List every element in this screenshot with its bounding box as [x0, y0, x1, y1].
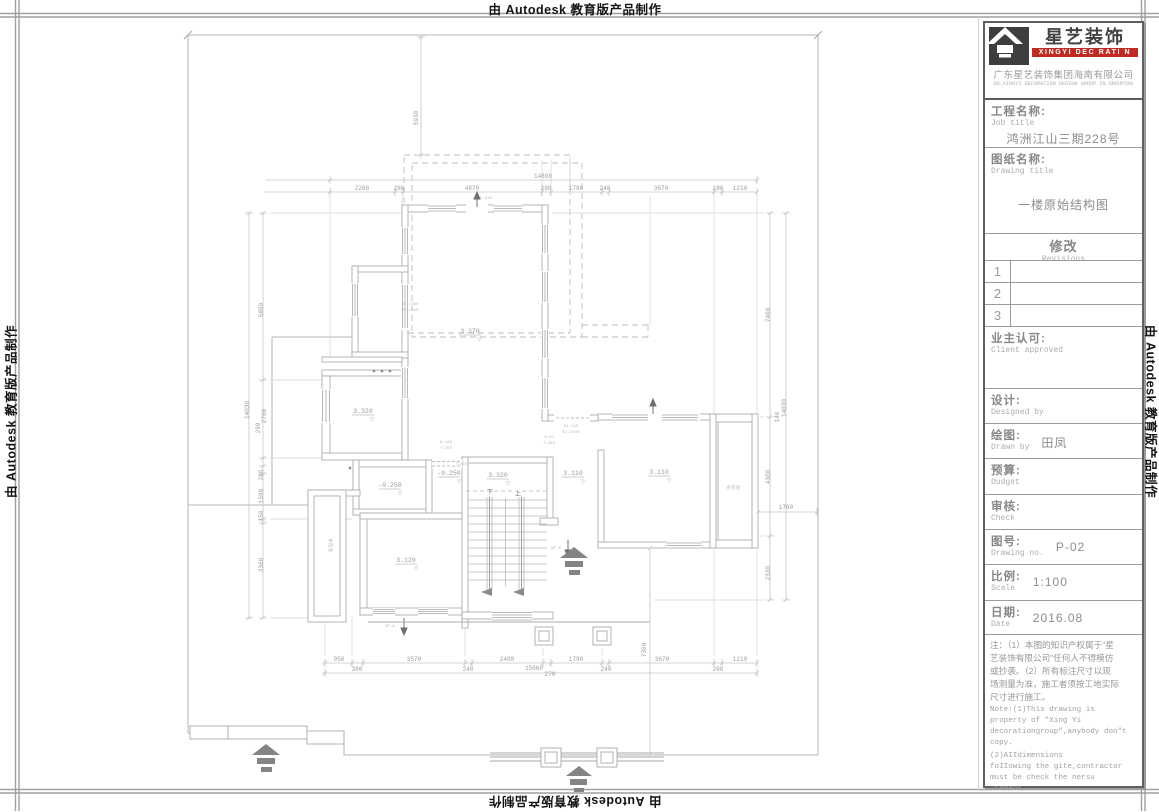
svg-text:270: 270: [545, 671, 556, 678]
autodesk-watermark-right: 由 Autodesk 教育版产品制作: [1143, 262, 1159, 562]
drawing-sheet: { "edge_marks": { "top": "由 Autodesk 教育版…: [0, 0, 1159, 811]
entrance-marker-stair-side-icon: [560, 547, 588, 575]
svg-text:140: 140: [774, 411, 781, 422]
revision-number: 3: [985, 305, 1011, 326]
revision-row-3: 3: [985, 305, 1142, 327]
check-label-cn: 审核:: [991, 498, 1136, 514]
drawing-title-value: 一楼原始结构图: [991, 196, 1136, 213]
revisions-label-cn: 修改: [991, 236, 1136, 255]
stair-down-arrowhead-icon: [481, 588, 492, 596]
drawing-title-section: 图纸名称: Drawing title 一楼原始结构图: [985, 148, 1142, 234]
drawing-no-label-cn: 图号:: [991, 533, 1044, 549]
job-title-label-cn: 工程名称:: [991, 103, 1136, 119]
svg-text:▽: ▽: [457, 479, 461, 485]
date-value: 2016.08: [1033, 611, 1083, 631]
svg-text:3670: 3670: [654, 185, 669, 192]
notes-section: 注：（1）本图的知识产权属于"星 艺装饰有限公司"任何人不得模仿 或抄袭。（2）…: [985, 635, 1142, 799]
stair-up-arrowhead-icon: [513, 588, 524, 596]
job-title-label-en: Job title: [991, 119, 1136, 128]
svg-text:950: 950: [334, 656, 345, 663]
entrance-marker-left-gate-icon: [252, 744, 280, 772]
autodesk-watermark-top: 由 Autodesk 教育版产品制作: [425, 0, 725, 18]
svg-text:WT-A: WT-A: [551, 547, 561, 551]
upper-floor-dashed-outline: [404, 155, 648, 420]
check-label-en: Check: [991, 514, 1136, 523]
svg-text:240: 240: [601, 666, 612, 673]
svg-text:2480: 2480: [500, 656, 515, 663]
revisions-label-en: Revisions: [991, 255, 1136, 261]
svg-text:WT-A: WT-A: [385, 625, 395, 629]
svg-text:K1:240: K1:240: [564, 425, 579, 429]
drawn-by-label-en: Drawn by: [991, 443, 1029, 452]
staircase: [466, 491, 549, 596]
svg-text:▽: ▽: [667, 478, 671, 484]
svg-text:280: 280: [394, 185, 405, 192]
job-title-value: 鸿洲江山三期228号: [991, 130, 1136, 147]
svg-text:1790: 1790: [569, 656, 584, 663]
svg-text:水花池: 水花池: [726, 484, 740, 491]
drawing-title-label-cn: 图纸名称:: [991, 151, 1136, 167]
designed-by-section: 设计: Designed by: [985, 389, 1142, 424]
svg-text:150: 150: [258, 510, 265, 521]
revision-row-1: 1: [985, 261, 1142, 283]
svg-text:T:260: T:260: [543, 442, 556, 446]
svg-text:280: 280: [258, 469, 265, 480]
dimension-chains: [245, 35, 819, 757]
svg-text:15060: 15060: [525, 665, 543, 672]
svg-text:K2:2640: K2:2640: [563, 431, 580, 435]
logo-section: 星艺装饰 XINGYI DEC RATI N 广东星艺装饰集团海南有限公司 GD…: [985, 23, 1142, 100]
drawn-by-value: 田凤: [1041, 434, 1067, 455]
client-approved-label-cn: 业主认可:: [991, 330, 1136, 346]
drawing-no-label-en: Drawing no.: [991, 549, 1044, 558]
check-section: 审核: Check: [985, 495, 1142, 530]
client-approved-label-en: Client approved: [991, 346, 1136, 355]
svg-text:-0.250: -0.250: [378, 482, 402, 489]
svg-text:14890: 14890: [534, 173, 552, 180]
revision-number: 2: [985, 283, 1011, 304]
svg-text:5930: 5930: [413, 110, 420, 125]
svg-text:2760: 2760: [261, 408, 268, 423]
svg-text:-0.250: -0.250: [437, 470, 461, 477]
client-approved-section: 业主认可: Client approved: [985, 327, 1142, 389]
svg-text:▽: ▽: [370, 417, 374, 423]
svg-text:360: 360: [352, 666, 363, 673]
svg-text:水花池: 水花池: [327, 538, 334, 552]
drawing-title-label-en: Drawing title: [991, 167, 1136, 176]
svg-text:1210: 1210: [733, 656, 748, 663]
svg-text:1590: 1590: [258, 488, 265, 503]
designed-by-label-en: Designed by: [991, 408, 1136, 417]
notes-cn: 注：（1）本图的知识产权属于"星 艺装饰有限公司"任何人不得模仿 或抄袭。（2）…: [990, 639, 1137, 703]
date-section: 日期: Date 2016.08: [985, 601, 1142, 635]
svg-text:3.320: 3.320: [353, 408, 373, 415]
drawing-no-value: P-02: [1056, 540, 1085, 561]
svg-text:1760: 1760: [779, 504, 794, 511]
svg-text:14030: 14030: [781, 399, 788, 417]
revision-number: 1: [985, 261, 1011, 282]
scale-label-cn: 比例:: [991, 568, 1021, 584]
svg-text:3670: 3670: [655, 656, 670, 663]
scale-value: 1:100: [1033, 575, 1068, 597]
svg-text:T:250: T:250: [440, 447, 453, 451]
svg-text:▽: ▽: [506, 481, 510, 487]
svg-text:1790: 1790: [569, 185, 584, 192]
svg-text:4300: 4300: [765, 469, 772, 484]
svg-text:3360: 3360: [258, 557, 265, 572]
revisions-header: 修改 Revisions: [985, 234, 1142, 261]
svg-text:290: 290: [541, 185, 552, 192]
svg-text:280: 280: [713, 185, 724, 192]
svg-text:3570: 3570: [407, 656, 422, 663]
svg-text:240: 240: [600, 185, 611, 192]
company-name-en: GD.XINGYI DECORATION DESIGN GROUP IN.GRO…: [989, 81, 1138, 87]
title-block: 星艺装饰 XINGYI DEC RATI N 广东星艺装饰集团海南有限公司 GD…: [983, 21, 1144, 788]
drawn-by-section: 绘图: Drawn by 田凤: [985, 424, 1142, 459]
scale-section: 比例: Scale 1:100: [985, 565, 1142, 601]
scale-label-en: Scale: [991, 584, 1021, 593]
autodesk-watermark-bottom: 由 Autodesk 教育版产品制作: [425, 793, 725, 812]
xingyi-logo-icon: [989, 27, 1029, 65]
svg-text:1210: 1210: [733, 185, 748, 192]
job-title-section: 工程名称: Job title 鸿洲江山三期228号: [985, 100, 1142, 148]
svg-text:▽: ▽: [477, 337, 481, 343]
budget-label-en: Dudget: [991, 478, 1136, 487]
svg-text:240: 240: [463, 666, 474, 673]
svg-text:3.320: 3.320: [488, 472, 508, 479]
drawn-by-label-cn: 绘图:: [991, 427, 1029, 443]
svg-text:3.370: 3.370: [460, 328, 480, 335]
entrance-marker-bottom-icon: [566, 766, 592, 792]
svg-text:上: 上: [515, 490, 521, 498]
svg-text:H:100: H:100: [440, 441, 453, 445]
svg-text:3.110: 3.110: [649, 469, 669, 476]
notes-en-2: (2)AIIdimensions foIIowing the gite,cont…: [990, 751, 1137, 795]
svg-text:5890: 5890: [258, 302, 265, 317]
site-boundary: [184, 31, 822, 755]
svg-text:14030: 14030: [244, 401, 251, 419]
revision-row-2: 2: [985, 283, 1142, 305]
svg-text:2260: 2260: [355, 185, 370, 192]
svg-text:3.120: 3.120: [396, 557, 416, 564]
date-label-cn: 日期:: [991, 604, 1021, 620]
svg-text:▽: ▽: [414, 566, 418, 572]
svg-text:290: 290: [255, 422, 262, 433]
budget-label-cn: 预算:: [991, 462, 1136, 478]
svg-text:2330: 2330: [765, 565, 772, 580]
autodesk-watermark-left: 由 Autodesk 教育版产品制作: [1, 262, 20, 562]
svg-text:H2:1360: H2:1360: [402, 309, 419, 313]
brand-name-cn: 星艺装饰: [1032, 27, 1138, 47]
svg-text:下: 下: [487, 489, 493, 496]
date-label-en: Date: [991, 620, 1021, 629]
svg-text:7400: 7400: [765, 307, 772, 322]
svg-text:F:370: F:370: [480, 197, 493, 201]
designed-by-label-cn: 设计:: [991, 392, 1136, 408]
svg-text:T:210: T:210: [455, 463, 468, 467]
svg-text:3.110: 3.110: [563, 470, 583, 477]
svg-text:0:90: 0:90: [544, 436, 554, 440]
svg-text:▽: ▽: [581, 479, 585, 485]
svg-text:7300: 7300: [641, 642, 648, 657]
drawing-no-section: 图号: Drawing no. P-02: [985, 530, 1142, 565]
svg-text:H1:7360: H1:7360: [402, 303, 419, 307]
budget-section: 预算: Dudget: [985, 459, 1142, 495]
svg-text:280: 280: [713, 666, 724, 673]
company-name-cn: 广东星艺装饰集团海南有限公司: [989, 67, 1138, 81]
svg-text:▽: ▽: [398, 491, 402, 497]
svg-text:4870: 4870: [465, 185, 480, 192]
notes-en-1: Note:(1)This drawing is property of "Xin…: [990, 705, 1137, 749]
brand-name-en: XINGYI DEC RATI N: [1032, 48, 1138, 57]
